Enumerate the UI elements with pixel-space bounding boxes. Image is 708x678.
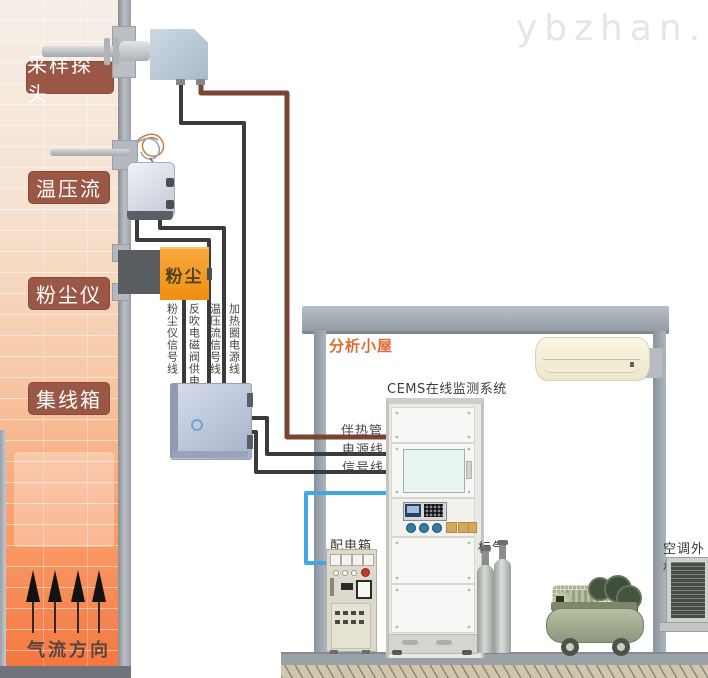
- junction-box-tab-1: [247, 393, 253, 407]
- junction-box-latch: [191, 419, 203, 431]
- rack-display-slot: [466, 461, 472, 479]
- ac-indoor-vent-flap: [543, 359, 640, 373]
- rack-knob-2: [419, 523, 429, 533]
- breaker-3: [352, 554, 363, 566]
- distribution-foot-right: [362, 650, 370, 654]
- junction-box-side: [170, 383, 178, 458]
- rack-controller-screen: [405, 504, 421, 517]
- distribution-vent-panel: [331, 603, 371, 649]
- rack-panel-blank-bottom: [391, 584, 475, 633]
- indicator-dot-2: [342, 570, 348, 576]
- dust-meter-nub: [207, 268, 212, 280]
- cems-rack-title: CEMS在线监测系统: [387, 378, 507, 397]
- vent-row-2: [335, 620, 366, 624]
- indicator-dot-red: [361, 568, 370, 577]
- rack-panel-blank-mid: [391, 537, 475, 584]
- distribution-foot-left: [330, 650, 338, 654]
- ac-outdoor-bracket: [659, 622, 708, 632]
- rack-controller-screen-glow: [407, 506, 419, 513]
- indicator-dot-1: [333, 570, 339, 576]
- compressor-wheel-right: [612, 638, 630, 656]
- rack-knob-3: [432, 523, 442, 533]
- vent-row-1: [335, 611, 366, 615]
- breaker-1: [330, 554, 341, 566]
- probe-flange-disc: [104, 38, 110, 65]
- rack-controller-keypad: [424, 504, 443, 517]
- junction-box-tab-2: [247, 435, 253, 449]
- rack-foot-left: [392, 650, 402, 655]
- tpf-box-base: [127, 211, 173, 220]
- breaker-4: [363, 554, 374, 566]
- gas-cylinder-2: [494, 559, 511, 653]
- heated-tube-label: 伴热管: [341, 420, 383, 439]
- dust-wall-block: [118, 250, 163, 294]
- distribution-meter: [356, 580, 372, 599]
- rack-display-screen: [403, 449, 465, 493]
- indicator-dot-3: [351, 570, 357, 576]
- distribution-slot: [330, 578, 334, 596]
- gas-cylinder-handle-1: [480, 546, 491, 551]
- tpf-nub-2: [166, 200, 174, 209]
- signal-line-label: 信号线: [342, 457, 384, 476]
- dust-meter-text: 粉尘: [166, 262, 204, 287]
- diagram-canvas: ybzhan.cn 采样探头 温压流 粉尘仪 集线箱 气流方向 分析小屋: [0, 0, 708, 678]
- probe-coupler: [120, 41, 150, 61]
- compressor-wheel-left: [561, 638, 579, 656]
- compressor-tank: [546, 608, 644, 643]
- junction-box-bottom: [172, 451, 248, 458]
- tpf-nub-1: [166, 178, 174, 187]
- airflow-arrows: [26, 570, 106, 633]
- distribution-switch: [341, 583, 353, 590]
- sampling-probe-box: [150, 29, 208, 80]
- rack-port-1: [446, 522, 457, 533]
- probe-connector-1: [176, 79, 185, 85]
- probe-connector-2: [196, 79, 205, 85]
- rack-base-slot-1: [402, 640, 418, 645]
- rack-knob-1: [406, 523, 416, 533]
- tpf-probe-rod: [50, 149, 130, 156]
- ac-outdoor-grille: [671, 562, 705, 618]
- rack-base-slot-2: [436, 640, 452, 645]
- rack-panel-blank-top: [391, 407, 475, 443]
- gas-cylinder-1: [477, 565, 494, 653]
- label-dust-signal-line: 粉尘仪信号线: [166, 303, 178, 375]
- ac-indoor-button: [630, 362, 634, 367]
- gas-cylinder-handle-2: [497, 540, 508, 545]
- probe-flange-disc2: [113, 38, 119, 65]
- power-line-label: 电源线: [342, 439, 384, 458]
- junction-box: [170, 383, 252, 460]
- rack-port-3: [468, 522, 477, 533]
- label-tpf-signal-line: 温压流信号线: [209, 303, 221, 375]
- breaker-2: [341, 554, 352, 566]
- rack-foot-right: [462, 650, 472, 655]
- dust-meter-body: 粉尘: [160, 247, 209, 300]
- label-heating-coil-line: 加热圈电源线: [228, 303, 240, 375]
